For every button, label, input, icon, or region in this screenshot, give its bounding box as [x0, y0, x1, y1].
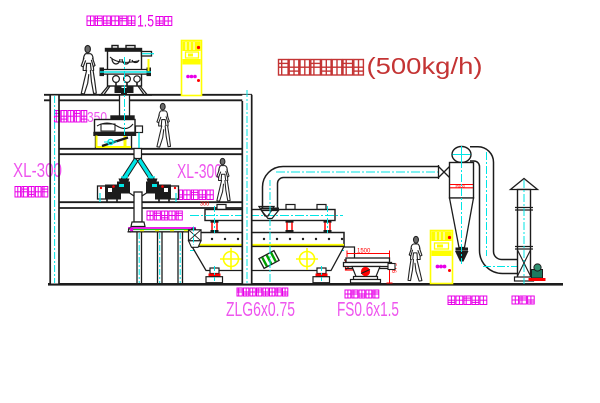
- svg-text:300: 300: [200, 202, 209, 208]
- svg-text:1.5: 1.5: [137, 12, 154, 31]
- svg-text:ZLG6x0.75: ZLG6x0.75: [226, 299, 295, 321]
- svg-text:XL-300: XL-300: [177, 161, 222, 183]
- svg-text:FS0.6x1.5: FS0.6x1.5: [337, 299, 399, 321]
- svg-text:P800: P800: [456, 183, 466, 188]
- svg-text:1500: 1500: [357, 249, 371, 255]
- svg-text:(500kg/h): (500kg/h): [367, 53, 483, 79]
